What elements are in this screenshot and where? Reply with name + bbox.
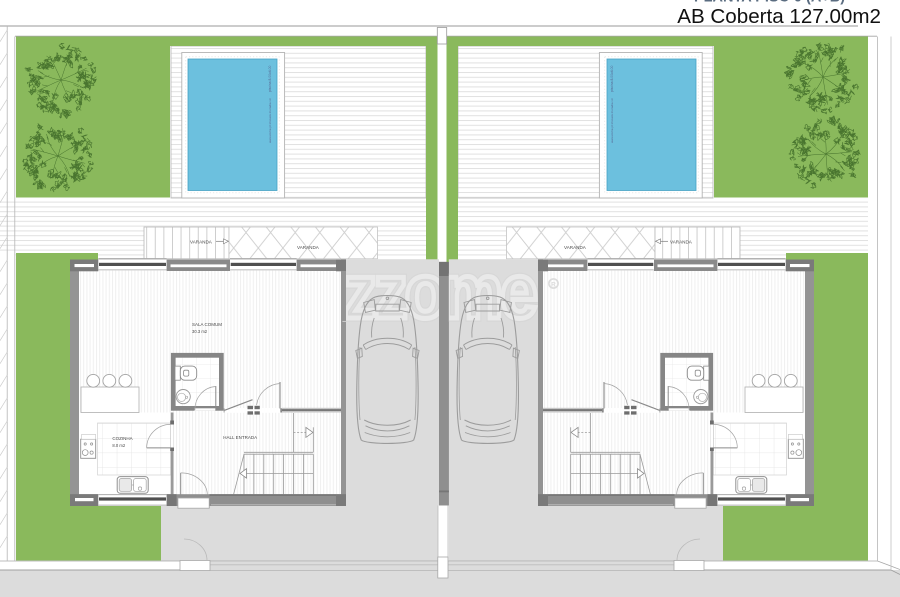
svg-text:HALL ENTRADA: HALL ENTRADA bbox=[223, 435, 257, 440]
svg-text:VARANDA: VARANDA bbox=[190, 239, 213, 244]
svg-text:www.zome.pt imoveis moradia v3: www.zome.pt imoveis moradia v3 bbox=[268, 98, 272, 143]
svg-text:VARANDA: VARANDA bbox=[564, 245, 587, 250]
svg-text:COZINHA: COZINHA bbox=[112, 436, 132, 441]
svg-text:R: R bbox=[551, 281, 556, 288]
svg-text:www.zome.pt imoveis moradia v3: www.zome.pt imoveis moradia v3 bbox=[610, 98, 614, 143]
svg-text:SALA COMUM: SALA COMUM bbox=[192, 322, 222, 327]
svg-text:8.0 m2: 8.0 m2 bbox=[112, 443, 125, 448]
svg-text:VARANDA: VARANDA bbox=[670, 239, 693, 244]
svg-text:piscina 8.00x4.00: piscina 8.00x4.00 bbox=[610, 65, 614, 92]
svg-text:30.3 m2: 30.3 m2 bbox=[192, 329, 208, 334]
svg-text:VARANDA: VARANDA bbox=[297, 245, 320, 250]
svg-text:AB Coberta 127.00m2: AB Coberta 127.00m2 bbox=[677, 5, 881, 28]
svg-text:piscina 8.00x4.00: piscina 8.00x4.00 bbox=[268, 65, 272, 92]
